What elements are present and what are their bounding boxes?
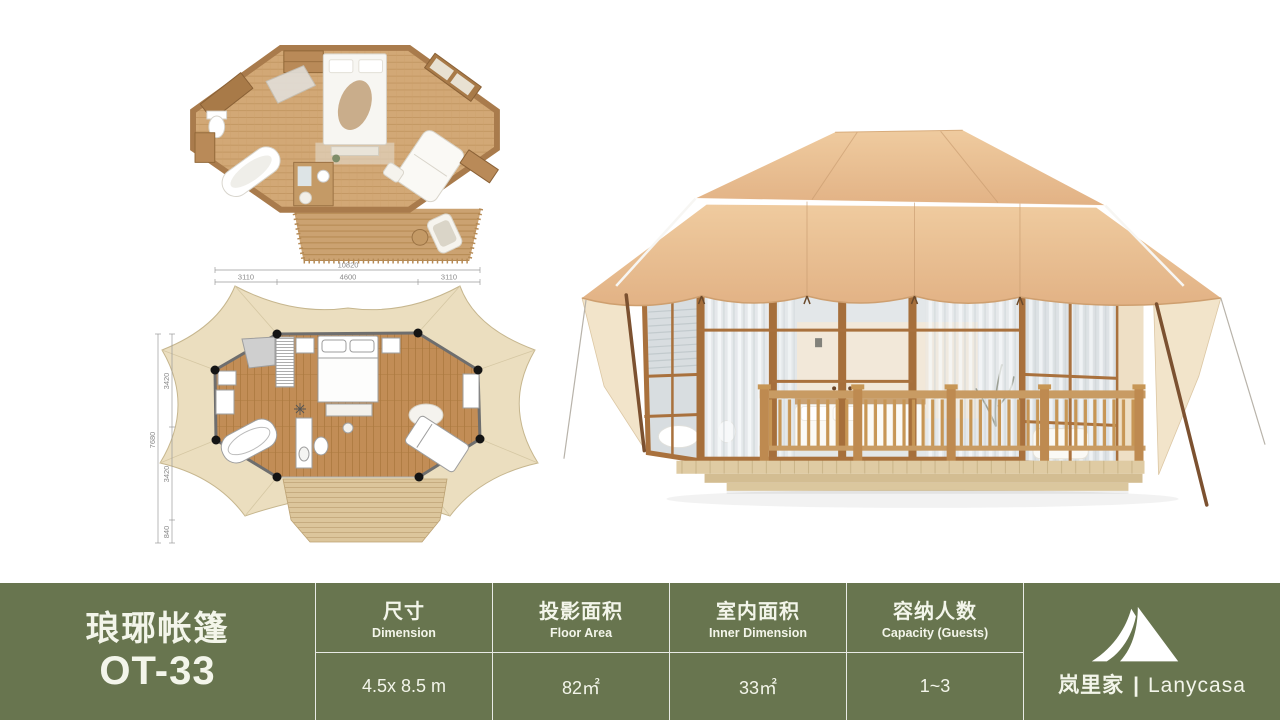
wash-counter-2d <box>216 390 234 414</box>
vanity-3d <box>294 162 333 205</box>
bed-3d <box>323 54 386 145</box>
spec-label-cn: 容纳人数 <box>893 595 977 624</box>
roof-top-tier <box>696 130 1106 205</box>
spec-head-floor-area: 投影面积 Floor Area <box>493 583 669 653</box>
floor-plan-3d-render <box>186 42 504 264</box>
deck-table <box>412 229 428 245</box>
spec-label-en: Floor Area <box>550 626 612 640</box>
spec-value-dimension: 4.5x 8.5 m <box>316 653 492 720</box>
wall-lamp <box>815 338 822 347</box>
door-handle <box>832 386 836 390</box>
product-model: OT-33 <box>99 649 215 693</box>
curtain-left-bay <box>707 294 769 460</box>
deck-3d <box>294 209 481 261</box>
brand-name-cn: 岚里家 <box>1058 674 1124 697</box>
spec-label-en: Inner Dimension <box>709 626 807 640</box>
spec-value-inner-dimension: 33㎡ <box>670 653 846 720</box>
right-guy-line <box>1221 298 1265 445</box>
spec-col-inner-dimension: 室内面积 Inner Dimension 33㎡ <box>670 583 847 720</box>
roof <box>582 130 1221 305</box>
deck-base <box>666 461 1178 508</box>
product-slide: 10820 3110 4600 3110 7680 3420 3420 840 <box>0 0 1280 720</box>
brand-logo: 岚里家|Lanycasa <box>1024 583 1280 720</box>
spec-head-capacity: 容纳人数 Capacity (Guests) <box>847 583 1023 653</box>
spec-label-cn: 尺寸 <box>383 595 425 624</box>
brand-separator: | <box>1133 674 1139 697</box>
spec-head-inner-dimension: 室内面积 Inner Dimension <box>670 583 846 653</box>
vanity-sink-2d <box>299 447 309 461</box>
tent-exterior-graphic <box>555 75 1280 527</box>
dim-vseg-top: 3420 <box>162 373 171 390</box>
dim-seg-right: 3110 <box>441 273 457 282</box>
brand-name-en: Lanycasa <box>1148 674 1246 697</box>
spec-label-en: Dimension <box>372 626 436 640</box>
dim-vseg-mid: 3420 <box>162 466 171 483</box>
spec-label-en: Capacity (Guests) <box>882 626 988 640</box>
spec-value-capacity: 1~3 <box>847 653 1023 720</box>
spec-bar: 琅琊帐篷 OT-33 尺寸 Dimension 4.5x 8.5 m 投影面积 … <box>0 583 1280 720</box>
product-name: 琅琊帐篷 <box>86 610 230 649</box>
basin-2d <box>218 371 236 385</box>
spec-col-floor-area: 投影面积 Floor Area 82㎡ <box>493 583 670 720</box>
cabinet-2d <box>463 374 479 408</box>
foot-bench-2d <box>326 404 372 416</box>
stool-2d <box>314 437 328 455</box>
spec-head-dimension: 尺寸 Dimension <box>316 583 492 653</box>
bathtub-through-glass <box>658 426 698 448</box>
nightstand-left <box>296 338 314 353</box>
dim-seg-mid: 4600 <box>340 273 357 282</box>
spec-col-dimension: 尺寸 Dimension 4.5x 8.5 m <box>316 583 493 720</box>
dim-vseg-deck: 840 <box>162 526 171 539</box>
bath-cabinet <box>195 133 215 163</box>
table-2d <box>343 423 353 433</box>
tent-exterior-render <box>555 75 1280 527</box>
right-wing-canvas <box>1154 296 1221 475</box>
bed-bench <box>331 147 378 156</box>
tent-icon <box>1085 605 1185 667</box>
dim-overall-height: 7680 <box>150 432 157 449</box>
dim-seg-left: 3110 <box>238 273 254 282</box>
spec-value-floor-area: 82㎡ <box>493 653 669 720</box>
spec-label-cn: 室内面积 <box>716 595 800 624</box>
wardrobe-2d <box>276 337 294 387</box>
dim-overall-width: 10820 <box>338 261 359 270</box>
spec-label-cn: 投影面积 <box>539 595 623 624</box>
nightstand-right <box>382 338 400 353</box>
floor-plan-3d-graphic <box>186 42 504 264</box>
spec-col-capacity: 容纳人数 Capacity (Guests) 1~3 <box>847 583 1024 720</box>
left-guy-line <box>564 300 586 459</box>
plant-3d <box>332 154 340 162</box>
porch-railing <box>758 384 1146 461</box>
ground-shadow <box>666 490 1178 508</box>
deck-2d <box>283 479 447 542</box>
floor-plan-2d: 10820 3110 4600 3110 7680 3420 3420 840 <box>150 258 550 580</box>
product-title-block: 琅琊帐篷 OT-33 <box>0 583 316 720</box>
floor-plan-2d-graphic: 10820 3110 4600 3110 7680 3420 3420 840 <box>150 258 550 580</box>
brand-text: 岚里家|Lanycasa <box>1058 669 1246 699</box>
bed-2d <box>318 336 378 402</box>
